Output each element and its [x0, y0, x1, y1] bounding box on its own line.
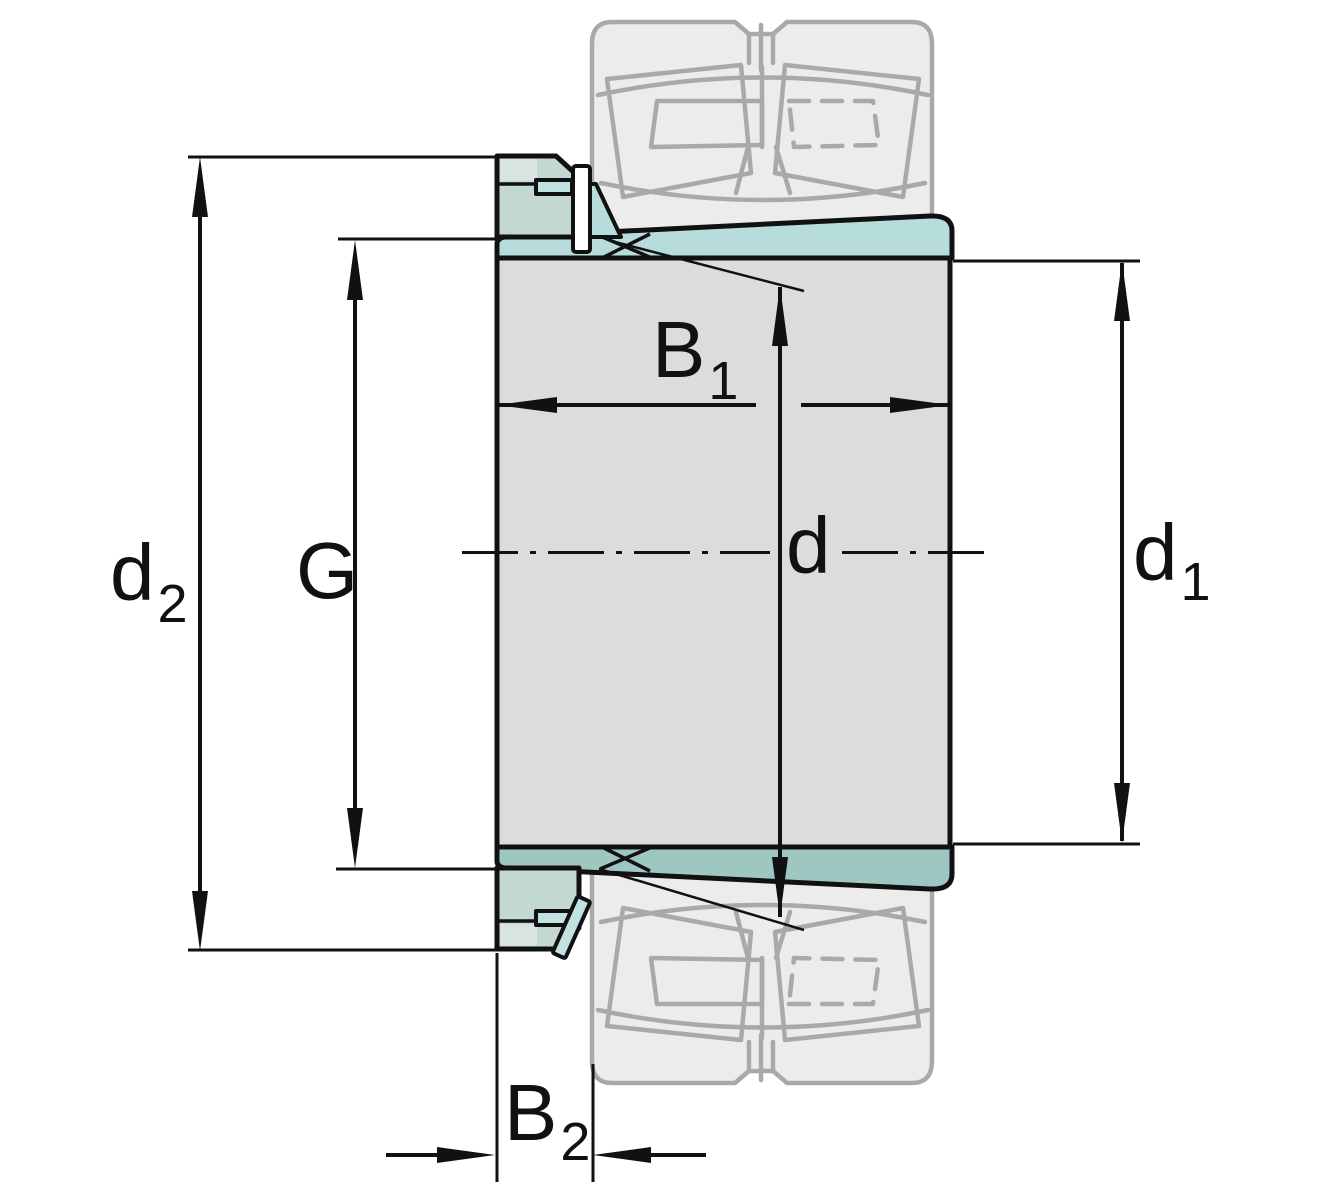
dim-label-d: d	[786, 501, 831, 590]
dim-label-g: G	[296, 526, 358, 615]
phantom-bearing-upper	[592, 22, 932, 244]
label-base: d	[786, 501, 831, 590]
lock-washer-upper-flat	[536, 180, 572, 194]
technical-drawing-canvas: d2 G B1 d d1 B2	[0, 0, 1330, 1200]
label-base: B	[652, 305, 705, 394]
label-subscript: 1	[1181, 552, 1211, 612]
label-base: d	[110, 528, 155, 617]
technical-drawing-page: d2 G B1 d d1 B2	[0, 0, 1330, 1200]
arrowhead-left	[593, 1147, 651, 1163]
dim-label-b2: B2	[504, 1068, 590, 1172]
lock-washer-upper-tab	[573, 166, 590, 252]
locknut-upper-highlight	[500, 159, 537, 181]
arrowhead-right	[437, 1147, 495, 1163]
sleeve-assembly	[497, 156, 952, 958]
arrowhead-down	[192, 891, 208, 951]
label-subscript: 2	[158, 574, 188, 634]
label-subscript: 1	[708, 351, 738, 411]
locknut-lower-highlight	[500, 924, 537, 946]
label-subscript: 2	[560, 1112, 590, 1172]
label-base: B	[504, 1068, 557, 1157]
label-base: d	[1133, 508, 1178, 597]
arrowhead-down	[347, 808, 363, 868]
arrowhead-down	[1114, 783, 1130, 843]
arrowhead-up	[347, 240, 363, 300]
dim-label-d1: d1	[1133, 508, 1211, 612]
arrowhead-up	[1114, 261, 1130, 321]
label-base: G	[296, 526, 358, 615]
dim-label-d2: d2	[110, 528, 188, 634]
arrowhead-up	[192, 157, 208, 217]
phantom-bearing-lower	[592, 861, 932, 1083]
